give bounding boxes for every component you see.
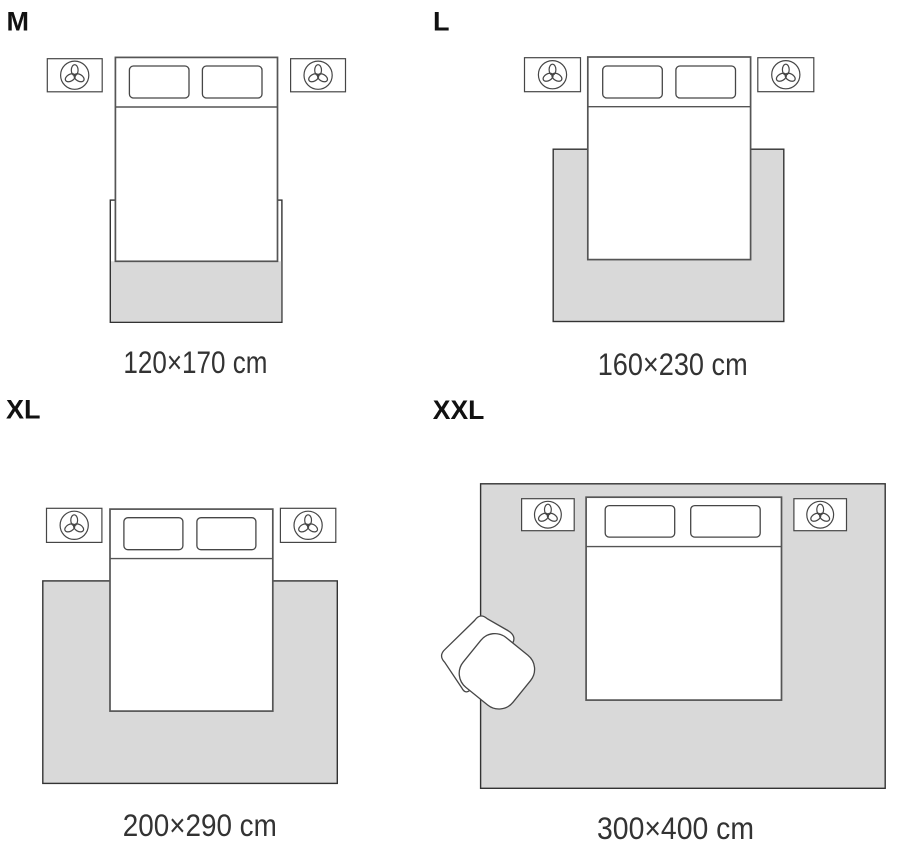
svg-text:XL: XL — [6, 395, 41, 425]
svg-text:L: L — [433, 7, 450, 37]
svg-text:300×400 cm: 300×400 cm — [597, 810, 754, 846]
svg-text:XXL: XXL — [433, 395, 485, 425]
svg-text:160×230 cm: 160×230 cm — [598, 346, 748, 382]
svg-text:120×170 cm: 120×170 cm — [123, 344, 267, 380]
svg-text:200×290 cm: 200×290 cm — [123, 807, 277, 843]
svg-text:M: M — [7, 7, 30, 37]
